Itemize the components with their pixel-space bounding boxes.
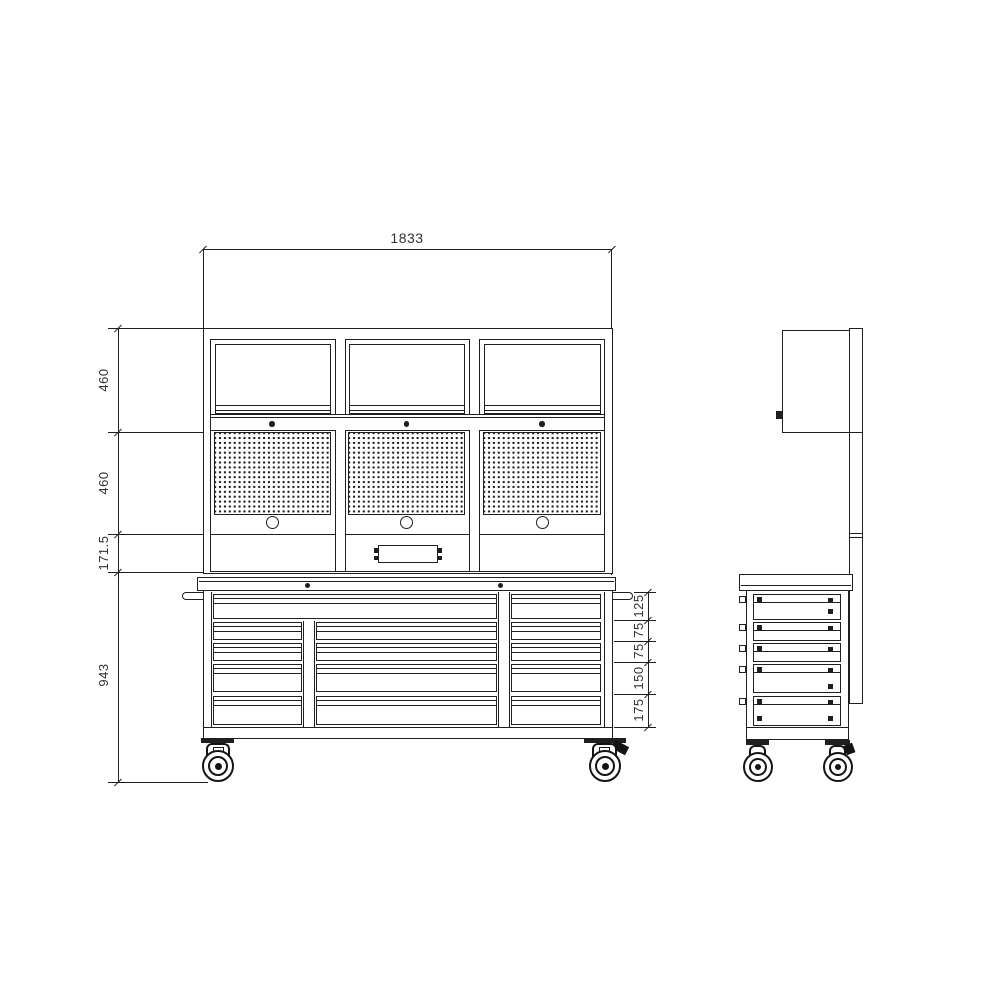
drawer-front (316, 643, 497, 661)
side-drawer (753, 643, 841, 662)
side-drawer-clip (739, 624, 746, 631)
drawer-divider-left (303, 621, 315, 728)
side-drawer-clip (739, 596, 746, 603)
bolt (828, 626, 833, 631)
bench-handle-right (610, 592, 633, 600)
dim-left-line (118, 328, 119, 782)
side-bench-top (739, 574, 853, 591)
dim-h460-top-label: 460 (97, 358, 111, 402)
shelf-opening-middle (349, 344, 465, 414)
pegboard-panel-middle (348, 432, 465, 515)
side-drawer-clip (739, 698, 746, 705)
handle-slot-tab (374, 556, 379, 561)
access-hole-middle (400, 516, 413, 529)
side-drawer (753, 622, 841, 641)
pegboard-panel-right (483, 432, 601, 515)
drawer-front (511, 622, 601, 640)
drawer-front (316, 622, 497, 640)
cabinet-base-line (204, 727, 612, 728)
shelf-opening-left (215, 344, 331, 414)
side-wall-cabinet (782, 330, 850, 433)
drawer-front (511, 696, 601, 725)
technical-drawing-canvas: 1833 460 460 171.5 943 (0, 0, 1000, 1000)
bolt (757, 625, 762, 630)
hutch-lower-divider-line (210, 534, 605, 535)
side-bench-top-line (741, 585, 851, 586)
side-back-panel-joint-3 (850, 537, 862, 538)
side-back-panel-joint-1 (850, 432, 862, 433)
bolt (828, 598, 833, 603)
hutch-rail-line-2 (210, 417, 605, 418)
bolt (757, 716, 762, 721)
dim-left-ext-4 (108, 572, 203, 573)
side-drawer-clip (739, 645, 746, 652)
bench-handle-left (182, 592, 205, 600)
bench-bolt-dot (498, 583, 503, 588)
dim-h943-label: 943 (97, 653, 111, 697)
dim-width-ext-left (203, 249, 204, 328)
dim-d175-label: 175 (632, 688, 646, 732)
caster-hub (215, 763, 222, 770)
caster-hub (755, 764, 761, 770)
drawer-front (213, 696, 302, 725)
drawer-front (511, 664, 601, 692)
bolt (828, 700, 833, 705)
drawer-front-wide (213, 594, 497, 619)
caster-hub (602, 763, 609, 770)
caster-hub (835, 764, 841, 770)
bolt (828, 609, 833, 614)
drawer-front (213, 664, 302, 692)
access-hole-right (536, 516, 549, 529)
drawer-front (213, 622, 302, 640)
side-cabinet-knob (776, 411, 782, 419)
cabinet-inner-wall-right (604, 592, 605, 727)
drawer-front (316, 664, 497, 692)
side-base-line (747, 727, 848, 728)
hutch-pillar-upper-1 (335, 339, 346, 414)
pegboard-panel-left (214, 432, 331, 515)
hutch-pillar-upper-2 (469, 339, 480, 414)
bolt (828, 716, 833, 721)
side-back-panel (849, 328, 863, 704)
side-back-panel-joint-2 (850, 533, 862, 534)
rail-bolt-dot (269, 421, 275, 427)
bench-bolt-dot (305, 583, 310, 588)
drawer-front (511, 594, 601, 619)
dim-left-ext-2 (108, 432, 203, 433)
dim-h460-mid-label: 460 (97, 461, 111, 505)
hutch-pillar-lower-2 (469, 430, 480, 571)
bolt (757, 667, 762, 672)
drawer-divider-right (498, 592, 510, 727)
hutch-pillar-lower-1 (335, 430, 346, 571)
bolt (757, 699, 762, 704)
bolt (757, 646, 762, 651)
dim-left-ext-3 (108, 534, 203, 535)
dim-tick (608, 246, 616, 254)
hutch-rail-line-1 (210, 414, 605, 415)
dim-width-line (203, 249, 612, 250)
hutch-rail-line-3 (210, 430, 605, 431)
handle-slot-tab (438, 556, 443, 561)
dim-width-label: 1833 (382, 231, 432, 246)
rail-bolt-dot (404, 421, 410, 427)
bolt (828, 668, 833, 673)
drawer-front (213, 643, 302, 661)
handle-slot-tab (438, 548, 443, 553)
dim-left-ext-1 (108, 328, 203, 329)
bolt (828, 647, 833, 652)
bench-top (197, 577, 616, 591)
cabinet-inner-wall-left (211, 592, 212, 727)
dim-left-ext-5 (108, 782, 208, 783)
side-drawer-clip (739, 666, 746, 673)
access-hole-left (266, 516, 279, 529)
drawer-front (316, 696, 497, 725)
hutch-handle-slot (378, 545, 438, 563)
bench-top-inner-line (199, 581, 614, 582)
drawer-front (511, 643, 601, 661)
handle-slot-tab (374, 548, 379, 553)
dim-h171-label: 171.5 (97, 531, 111, 575)
bolt (757, 597, 762, 602)
shelf-opening-right (484, 344, 601, 414)
bolt (828, 684, 833, 689)
rail-bolt-dot (539, 421, 545, 427)
